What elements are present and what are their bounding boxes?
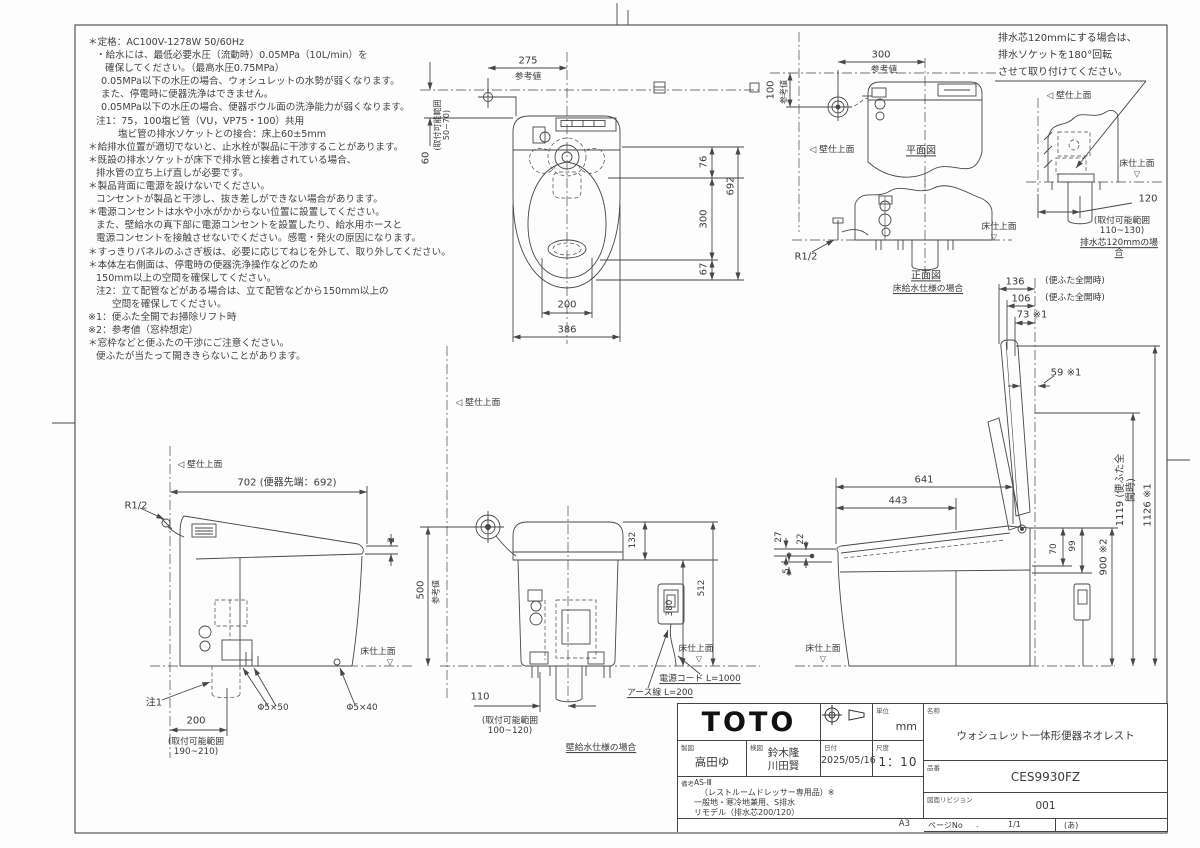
toto-logo-cell: TOTO — [678, 704, 821, 741]
note-line: また、停電時に便器洗浄はできません。 — [88, 88, 451, 101]
note-line: ※1：便ふた全開でお掃除リフト時 — [88, 311, 451, 324]
dim-136-note: (便ふた全開時) — [1045, 277, 1105, 287]
title-block: TOTO 単位 mm 製図 高田ゆ 検図 鈴木隆 川田賢 日付 2025/05/… — [677, 703, 1168, 832]
projection-cell — [821, 704, 873, 741]
dim-99: 99 — [1069, 540, 1079, 551]
dim-1119: 1119 (便ふた全開時) — [1115, 453, 1137, 527]
scale-label: 尺度 — [876, 742, 889, 752]
page-dot: . — [976, 820, 979, 829]
note-line: ＊定格：AC100V-1278W 50/60Hz — [88, 36, 451, 49]
floor-marker-icon: ▽ — [387, 659, 393, 668]
wall-surface-label: ◁ 壁仕上面 — [1047, 92, 1092, 102]
wall-surface-label: ◁ 壁仕上面 — [810, 146, 855, 156]
note-line: 排水管の立ち上げ直しが必要です。 — [88, 167, 451, 180]
revision-cell: 図面リビジョン 001 — [924, 793, 1168, 819]
note-line: ＊給排水位置が適切でないと、止水栓が製品に干渉することがあります。 — [88, 141, 451, 154]
dim-106-note: (便ふた全開時) — [1045, 294, 1105, 304]
bolt-5x40-label: Φ5×40 — [346, 704, 377, 714]
wall-surface-label: ◁ 壁仕上面 — [456, 399, 501, 409]
name-cell: 名称 ウォシュレット一体形便器ネオレスト — [924, 704, 1168, 761]
front-view-drawing — [792, 176, 1012, 272]
drain-note-line3: させて取り付けてください。 — [998, 67, 1128, 78]
dim-1126: 1126 ※1 — [1142, 483, 1153, 526]
dim-110-range: (取付可能範囲 100~120) — [482, 717, 538, 737]
page-note-cell: (あ) — [1056, 819, 1168, 832]
open-view-drawing — [774, 278, 1160, 666]
number-cell: 品番 CES9930FZ — [924, 761, 1168, 793]
view-title-plan: 平面図 — [906, 145, 936, 156]
note-line: 注2：立て配管などがある場合は、立て配管などから150mm以上の — [88, 285, 451, 298]
earth-wire-label: アース線 L=200 — [627, 689, 693, 699]
floor-marker-icon: ▽ — [820, 656, 826, 665]
drafter-label: 製図 — [681, 742, 694, 752]
dim-900: 900 ※2 — [1098, 538, 1109, 575]
note-line: また、壁給水の真下部に電源コンセントを設置したり、給水用ホースと — [88, 219, 451, 232]
floor-surface-label: 床仕上面 — [678, 645, 713, 655]
note-line: ＊既設の排水ソケットが床下で排水管と接着されている場合、 — [88, 154, 451, 167]
page-cell: ページNo . 1/1 — [924, 819, 1056, 832]
note-line: 注1：75，100塩ビ管（VU，VP75・100）共用 — [88, 115, 451, 128]
page-label: ページNo — [928, 820, 963, 831]
page-note: (あ) — [1064, 820, 1078, 831]
dim-27: 27 — [775, 531, 785, 542]
caption-wall-supply: 壁給水仕様の場合 — [566, 744, 636, 754]
note-line: 0.05MPa以下の水圧の場合、便器ボウル面の洗浄能力が弱くなります。 — [88, 101, 451, 114]
date-label: 日付 — [824, 742, 837, 752]
dim-300-plan: 300 — [698, 209, 709, 228]
remarks-line: リモデル（排水芯200/120） — [694, 807, 799, 818]
dim-5: 5 — [783, 568, 793, 574]
note-line: 0.05MPa以下の水圧の場合、ウォシュレットの水勢が弱くなります。 — [88, 75, 451, 88]
number-label: 品番 — [927, 762, 940, 772]
dim-110: 110 — [470, 691, 489, 702]
sheet-size: A3 — [678, 819, 924, 832]
note-line: 150mm以上の空間を確保してください。 — [88, 272, 451, 285]
unit-label: 単位 — [876, 705, 889, 715]
dim-73: 73 ※1 — [1017, 309, 1048, 320]
note-line: ＊窓枠などと便ふたの干渉にご注意ください。 — [88, 337, 451, 350]
date-cell: 日付 2025/05/16 — [821, 741, 873, 777]
revision-label: 図面リビジョン — [927, 794, 973, 804]
dim-692: 692 — [725, 176, 736, 195]
note-line: 電源コンセントを接触させないでください。感電・発火の原因になります。 — [88, 232, 451, 245]
checker-cell: 検図 鈴木隆 川田賢 — [747, 741, 821, 777]
dim-120-range: (取付可能範囲 110~130) — [1094, 217, 1150, 237]
dim-67: 67 — [698, 263, 709, 276]
dim-120: 120 — [1138, 193, 1157, 204]
dim-200-plan: 200 — [557, 299, 576, 310]
checker-name-2: 川田賢 — [747, 760, 820, 773]
dim-59: 59 ※1 — [1051, 367, 1082, 378]
dim-60-range: (取付可能範囲 50~70) — [434, 99, 452, 150]
dim-275-ref: 参考値 — [515, 73, 541, 83]
view-subtitle-front: 床給水仕様の場合 — [893, 285, 963, 295]
bolt-5x50-label: Φ5×50 — [257, 704, 288, 714]
product-number: CES9930FZ — [924, 761, 1167, 784]
drafter-cell: 製図 高田ゆ — [678, 741, 747, 777]
floor-marker-icon: ▽ — [696, 656, 702, 665]
dim-22: 22 — [797, 533, 807, 544]
floor-surface-label: 床仕上面 — [360, 648, 395, 658]
dim-200-side: 200 — [186, 715, 205, 726]
dim-380: 380 — [666, 600, 676, 617]
note-line: ＊すっきりパネルのふさぎ板は、必要に応じてねじを外して、取り外してください。 — [88, 246, 451, 259]
drain120-drawing — [995, 81, 1162, 224]
wall-surface-label: ◁ 壁仕上面 — [178, 461, 223, 471]
dim-386: 386 — [557, 324, 576, 335]
remarks-line: AS-Ⅲ — [694, 778, 712, 787]
dim-100-ref: 参考値 — [781, 80, 790, 104]
floor-marker-icon: ▽ — [991, 234, 997, 243]
checker-label: 検図 — [750, 742, 763, 752]
drain-note-line1: 排水芯120mmにする場合は、 — [998, 33, 1137, 44]
dim-500-ref: 参考値 — [433, 580, 442, 604]
floor-marker-icon: ▽ — [1134, 171, 1140, 180]
note-line: 確保してください。（最高水圧0.75MPa） — [88, 62, 451, 75]
name-label: 名称 — [927, 705, 940, 715]
dim-2: 2 — [388, 537, 398, 543]
floor-surface-label: 床仕上面 — [981, 223, 1016, 233]
caption-drain120: 排水芯120mmの場合 — [1079, 239, 1160, 259]
dim-443: 443 — [888, 495, 907, 506]
remarks-cell: 備考 AS-Ⅲ （レストルームドレッサー専用品）※ 一般地・寒冷地兼用、S排水 … — [678, 777, 924, 819]
supply-r12-label: R1/2 — [124, 500, 147, 511]
dim-132: 132 — [629, 532, 639, 549]
floor-surface-label: 床仕上面 — [805, 645, 840, 655]
dim-300-ref: 参考値 — [871, 66, 897, 76]
spec-notes: ＊定格：AC100V-1278W 50/60Hz ・給水には、最低必要水圧（流動… — [88, 36, 451, 363]
view-title-front: 正面図 — [911, 270, 941, 281]
dim-136: 136 — [1005, 276, 1024, 287]
scale-cell: 尺度 1：10 — [873, 741, 924, 777]
dim-500: 500 — [415, 580, 426, 599]
dim-106: 106 — [1011, 293, 1030, 304]
note-line: ＊本体左右側面は、停電時の便器洗浄操作などのため — [88, 259, 451, 272]
product-name: ウォシュレット一体形便器ネオレスト — [924, 704, 1167, 743]
note1-ref: 注1 — [146, 697, 162, 708]
note-line: ＊電源コンセントは水や小水がかからない位置に設置してください。 — [88, 206, 451, 219]
note-line: 塩ビ管の排水ソケットとの接合：床上60±5mm — [88, 128, 451, 141]
power-cord-label: 電源コード L=1000 — [659, 675, 740, 685]
top-view-drawing — [420, 52, 762, 344]
drain-note-line2: 排水ソケットを180°回転 — [998, 50, 1112, 61]
third-angle-projection-icon — [821, 704, 867, 726]
supply-r12-label: R1/2 — [794, 251, 817, 262]
note-line: ※2：参考値（窓枠想定） — [88, 324, 451, 337]
note-line: ＊製品背面に電源を設けないでください。 — [88, 180, 451, 193]
dim-702: 702 (便器先端：692) — [237, 477, 336, 488]
note-line: コンセントが製品と干渉し、抜き差しができない場合があります。 — [88, 193, 451, 206]
note-line: 空間を確保してください。 — [88, 298, 451, 311]
dim-275: 275 — [518, 55, 537, 66]
floor-surface-label: 床仕上面 — [1119, 160, 1154, 170]
dim-512: 512 — [698, 580, 708, 597]
note-line: ・給水には、最低必要水圧（流動時）0.05MPa（10L/min）を — [88, 49, 451, 62]
toto-logo: TOTO — [702, 707, 797, 738]
dim-200-range: (取付可能範囲 190~210) — [168, 738, 224, 758]
drawing-sheet: { "notes": { "lines": [ "＊定格：AC100V-1278… — [0, 0, 1200, 848]
dim-70: 70 — [1050, 543, 1060, 554]
dim-300-small: 300 — [871, 49, 890, 60]
page-value: 1/1 — [1008, 820, 1021, 829]
note-line: 便ふたが当たって開ききらないことがあります。 — [88, 350, 451, 363]
unit-cell: 単位 mm — [873, 704, 924, 741]
dim-641: 641 — [914, 474, 933, 485]
remarks-label: 備考 — [681, 778, 694, 788]
dim-60: 60 — [420, 152, 431, 165]
dim-100: 100 — [765, 80, 776, 99]
dim-76: 76 — [698, 156, 709, 169]
